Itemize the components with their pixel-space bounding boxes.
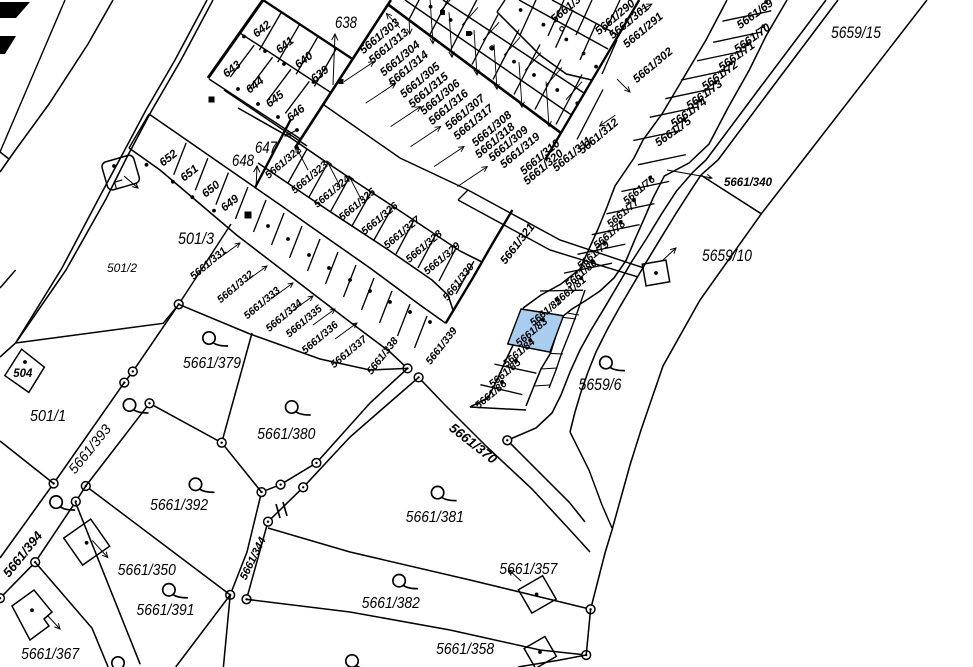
svg-text:5661/350: 5661/350 [118, 562, 176, 579]
svg-text:5661/367: 5661/367 [21, 646, 80, 663]
svg-text:5661/379: 5661/379 [183, 355, 241, 372]
svg-text:501/2: 501/2 [107, 261, 137, 275]
svg-text:5659/15: 5659/15 [831, 23, 881, 42]
svg-text:5661/340: 5661/340 [724, 177, 773, 189]
svg-text:5661/381: 5661/381 [406, 509, 464, 526]
svg-text:5661/382: 5661/382 [362, 595, 420, 612]
svg-text:5661/391: 5661/391 [137, 602, 195, 619]
svg-text:5661/358: 5661/358 [436, 641, 494, 658]
svg-text:501/1: 501/1 [30, 408, 66, 425]
svg-text:501/3: 501/3 [178, 229, 214, 248]
svg-text:504: 504 [13, 368, 33, 380]
svg-text:5659/6: 5659/6 [579, 375, 622, 394]
svg-text:5661/380: 5661/380 [257, 426, 315, 443]
svg-text:5661/357: 5661/357 [499, 561, 558, 578]
svg-text:648: 648 [232, 151, 254, 170]
svg-text:638: 638 [335, 13, 357, 32]
svg-text:647: 647 [255, 138, 277, 157]
svg-text:5661/392: 5661/392 [150, 497, 208, 514]
